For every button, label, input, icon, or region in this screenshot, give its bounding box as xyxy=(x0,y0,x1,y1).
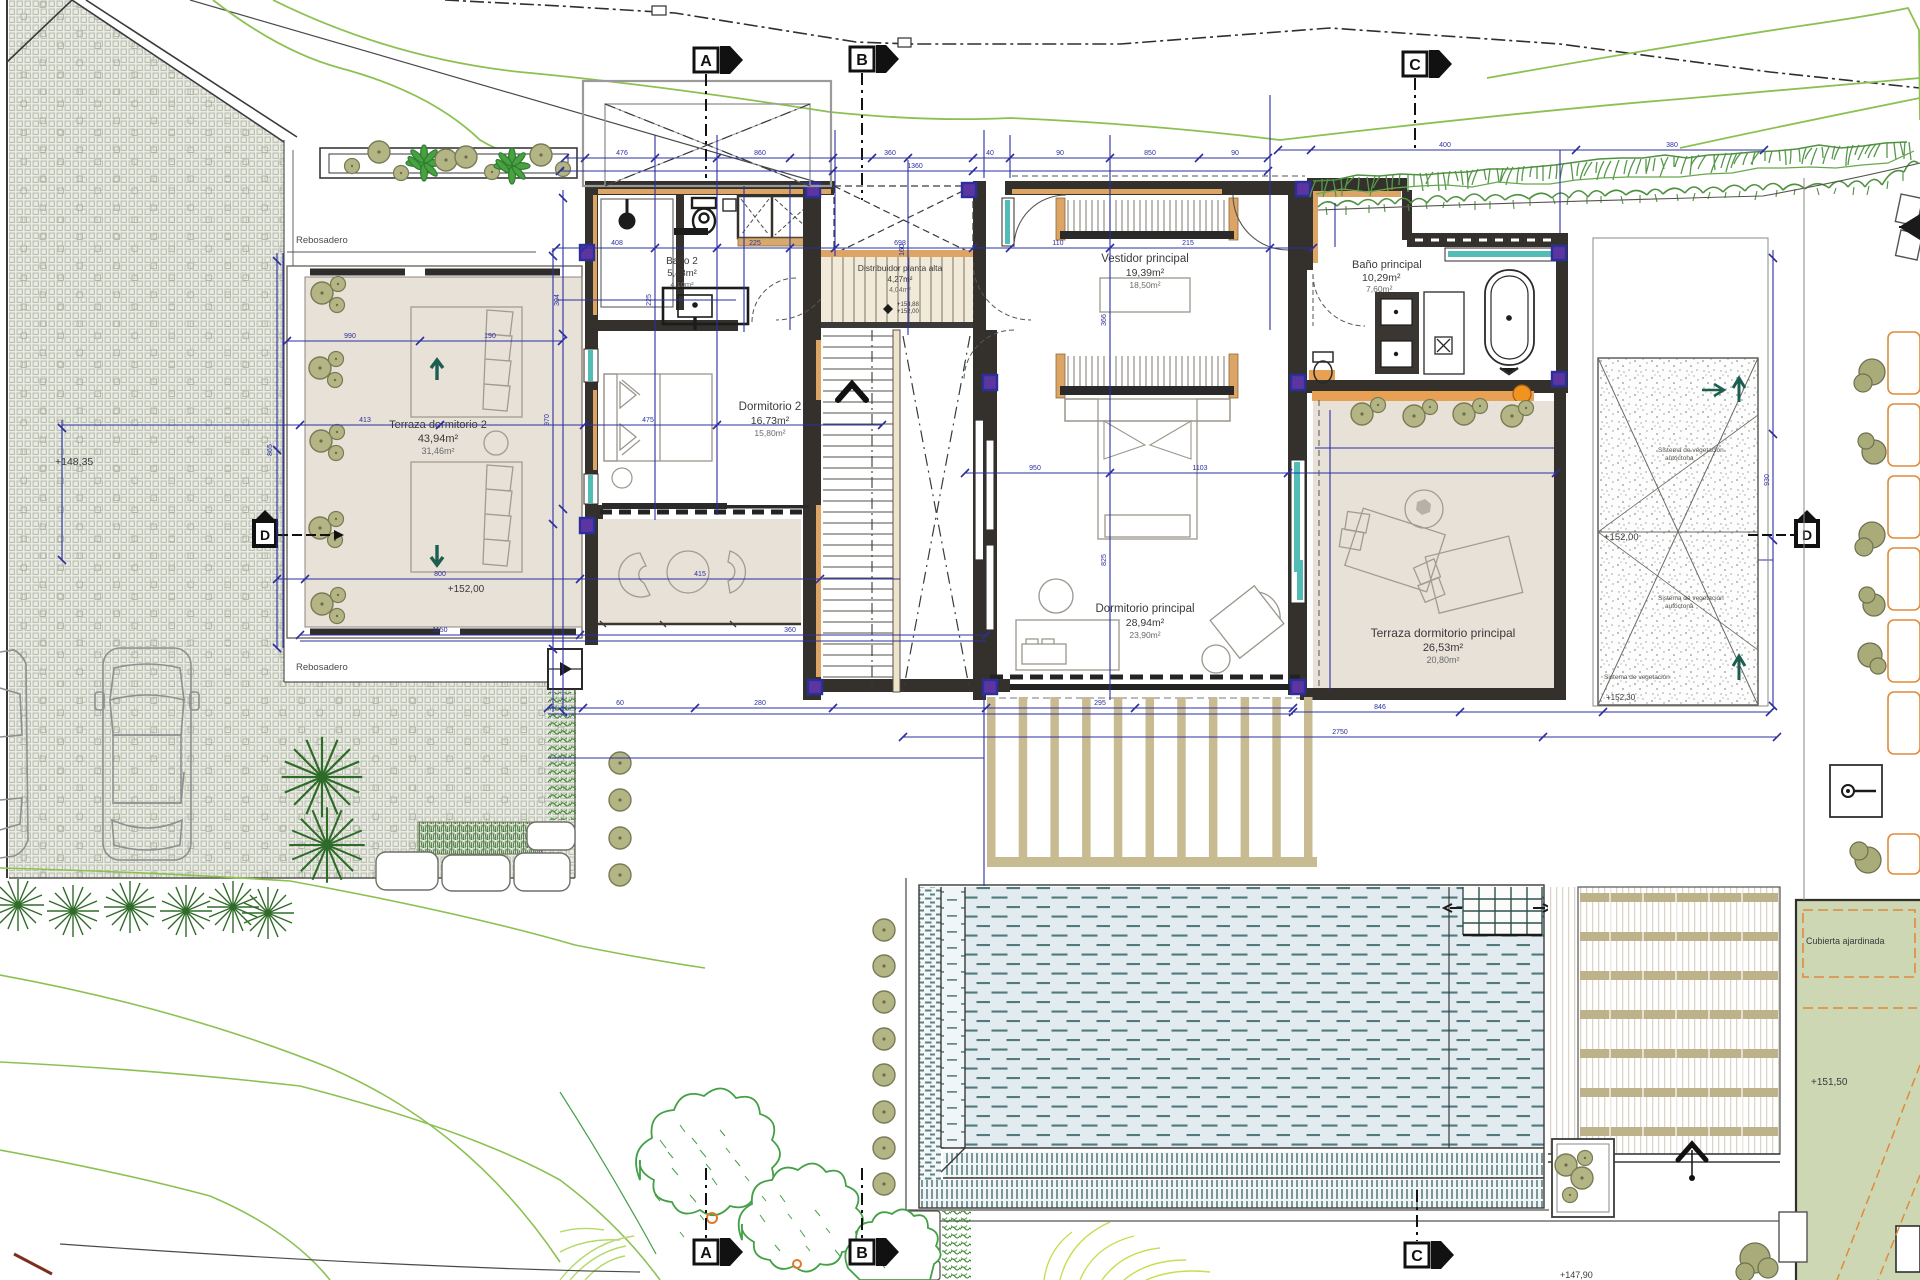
svg-text:4,27m²: 4,27m² xyxy=(888,275,913,284)
svg-text:Sistema de vegetación: Sistema de vegetación xyxy=(1604,674,1670,681)
svg-text:1360: 1360 xyxy=(907,163,923,170)
svg-text:40: 40 xyxy=(986,150,994,157)
svg-text:43,94m²: 43,94m² xyxy=(418,433,459,445)
svg-text:476: 476 xyxy=(616,150,628,157)
svg-text:C: C xyxy=(1411,1248,1423,1265)
svg-text:7,60m²: 7,60m² xyxy=(1366,284,1393,294)
svg-text:28,94m²: 28,94m² xyxy=(1126,617,1165,629)
svg-text:400: 400 xyxy=(1439,142,1451,149)
svg-text:A: A xyxy=(700,53,712,70)
svg-text:380: 380 xyxy=(1666,142,1678,149)
svg-text:110: 110 xyxy=(1052,240,1063,247)
svg-text:360: 360 xyxy=(884,150,896,157)
svg-text:D: D xyxy=(1802,527,1812,543)
svg-text:Sistema de vegetación: Sistema de vegetación xyxy=(1658,595,1724,602)
svg-text:225: 225 xyxy=(749,240,761,247)
svg-text:B: B xyxy=(856,1245,868,1262)
svg-text:19,39m²: 19,39m² xyxy=(1126,267,1165,279)
svg-text:4,10m²: 4,10m² xyxy=(670,280,694,289)
svg-text:C: C xyxy=(1409,57,1421,74)
svg-text:autóctona: autóctona xyxy=(1665,455,1694,462)
svg-text:Baño principal: Baño principal xyxy=(1352,259,1422,271)
svg-text:850: 850 xyxy=(1144,150,1156,157)
svg-text:Sistema de vegetación: Sistema de vegetación xyxy=(1658,447,1724,454)
svg-text:90: 90 xyxy=(1231,150,1239,157)
svg-text:20,80m²: 20,80m² xyxy=(1426,655,1459,665)
svg-text:B: B xyxy=(856,52,868,69)
svg-text:846: 846 xyxy=(1374,704,1386,711)
svg-text:1103: 1103 xyxy=(1192,465,1207,472)
svg-text:475: 475 xyxy=(642,417,654,424)
svg-text:413: 413 xyxy=(359,417,371,424)
svg-text:2750: 2750 xyxy=(1332,729,1348,736)
svg-text:360: 360 xyxy=(784,627,796,634)
svg-text:Vestidor principal: Vestidor principal xyxy=(1101,253,1189,265)
svg-text:408: 408 xyxy=(611,240,623,247)
svg-text:950: 950 xyxy=(1029,465,1041,472)
svg-text:865: 865 xyxy=(267,444,274,456)
svg-text:5,43m²: 5,43m² xyxy=(667,268,697,279)
svg-text:Rebosadero: Rebosadero xyxy=(296,235,348,246)
svg-text:+148,35: +148,35 xyxy=(55,456,93,468)
svg-text:+147,90: +147,90 xyxy=(1560,1270,1593,1280)
svg-text:+151,50: +151,50 xyxy=(1811,1077,1848,1088)
svg-text:26,53m²: 26,53m² xyxy=(1423,642,1464,654)
svg-text:1150: 1150 xyxy=(432,627,447,634)
svg-text:D: D xyxy=(260,527,270,543)
svg-text:+152,00: +152,00 xyxy=(448,584,485,595)
svg-text:Terraza dormitorio principal: Terraza dormitorio principal xyxy=(1371,626,1516,640)
svg-text:+152,00: +152,00 xyxy=(1604,532,1639,543)
svg-text:215: 215 xyxy=(1182,240,1194,247)
svg-text:90: 90 xyxy=(1056,150,1064,157)
svg-text:Baño 2: Baño 2 xyxy=(666,256,698,267)
svg-text:15,80m²: 15,80m² xyxy=(754,428,785,438)
svg-text:18,50m²: 18,50m² xyxy=(1129,280,1160,290)
svg-text:Rebosadero: Rebosadero xyxy=(296,662,348,673)
svg-text:225: 225 xyxy=(646,294,653,306)
svg-text:190: 190 xyxy=(484,333,496,340)
svg-text:160: 160 xyxy=(899,244,906,256)
svg-text:Cubierta ajardinada: Cubierta ajardinada xyxy=(1806,936,1885,946)
svg-text:860: 860 xyxy=(754,150,766,157)
svg-text:23,90m²: 23,90m² xyxy=(1129,630,1160,640)
svg-text:31,46m²: 31,46m² xyxy=(421,446,454,456)
svg-text:970: 970 xyxy=(544,414,551,426)
svg-text:Distribuidor planta alta: Distribuidor planta alta xyxy=(858,263,943,273)
svg-text:60: 60 xyxy=(616,700,624,707)
svg-text:825: 825 xyxy=(1101,554,1108,566)
svg-text:+152,30: +152,30 xyxy=(1606,693,1636,702)
svg-text:autóctona: autóctona xyxy=(1665,603,1694,610)
svg-text:10,29m²: 10,29m² xyxy=(1362,272,1401,284)
svg-text:280: 280 xyxy=(754,700,766,707)
svg-text:366: 366 xyxy=(1101,314,1108,326)
svg-text:Dormitorio 2: Dormitorio 2 xyxy=(739,401,802,413)
svg-text:304: 304 xyxy=(554,294,561,306)
svg-text:295: 295 xyxy=(1094,700,1106,707)
svg-text:A: A xyxy=(700,1245,712,1262)
svg-text:800: 800 xyxy=(434,571,446,578)
svg-text:930: 930 xyxy=(1764,474,1771,486)
svg-text:415: 415 xyxy=(694,571,706,578)
svg-text:990: 990 xyxy=(344,333,356,340)
